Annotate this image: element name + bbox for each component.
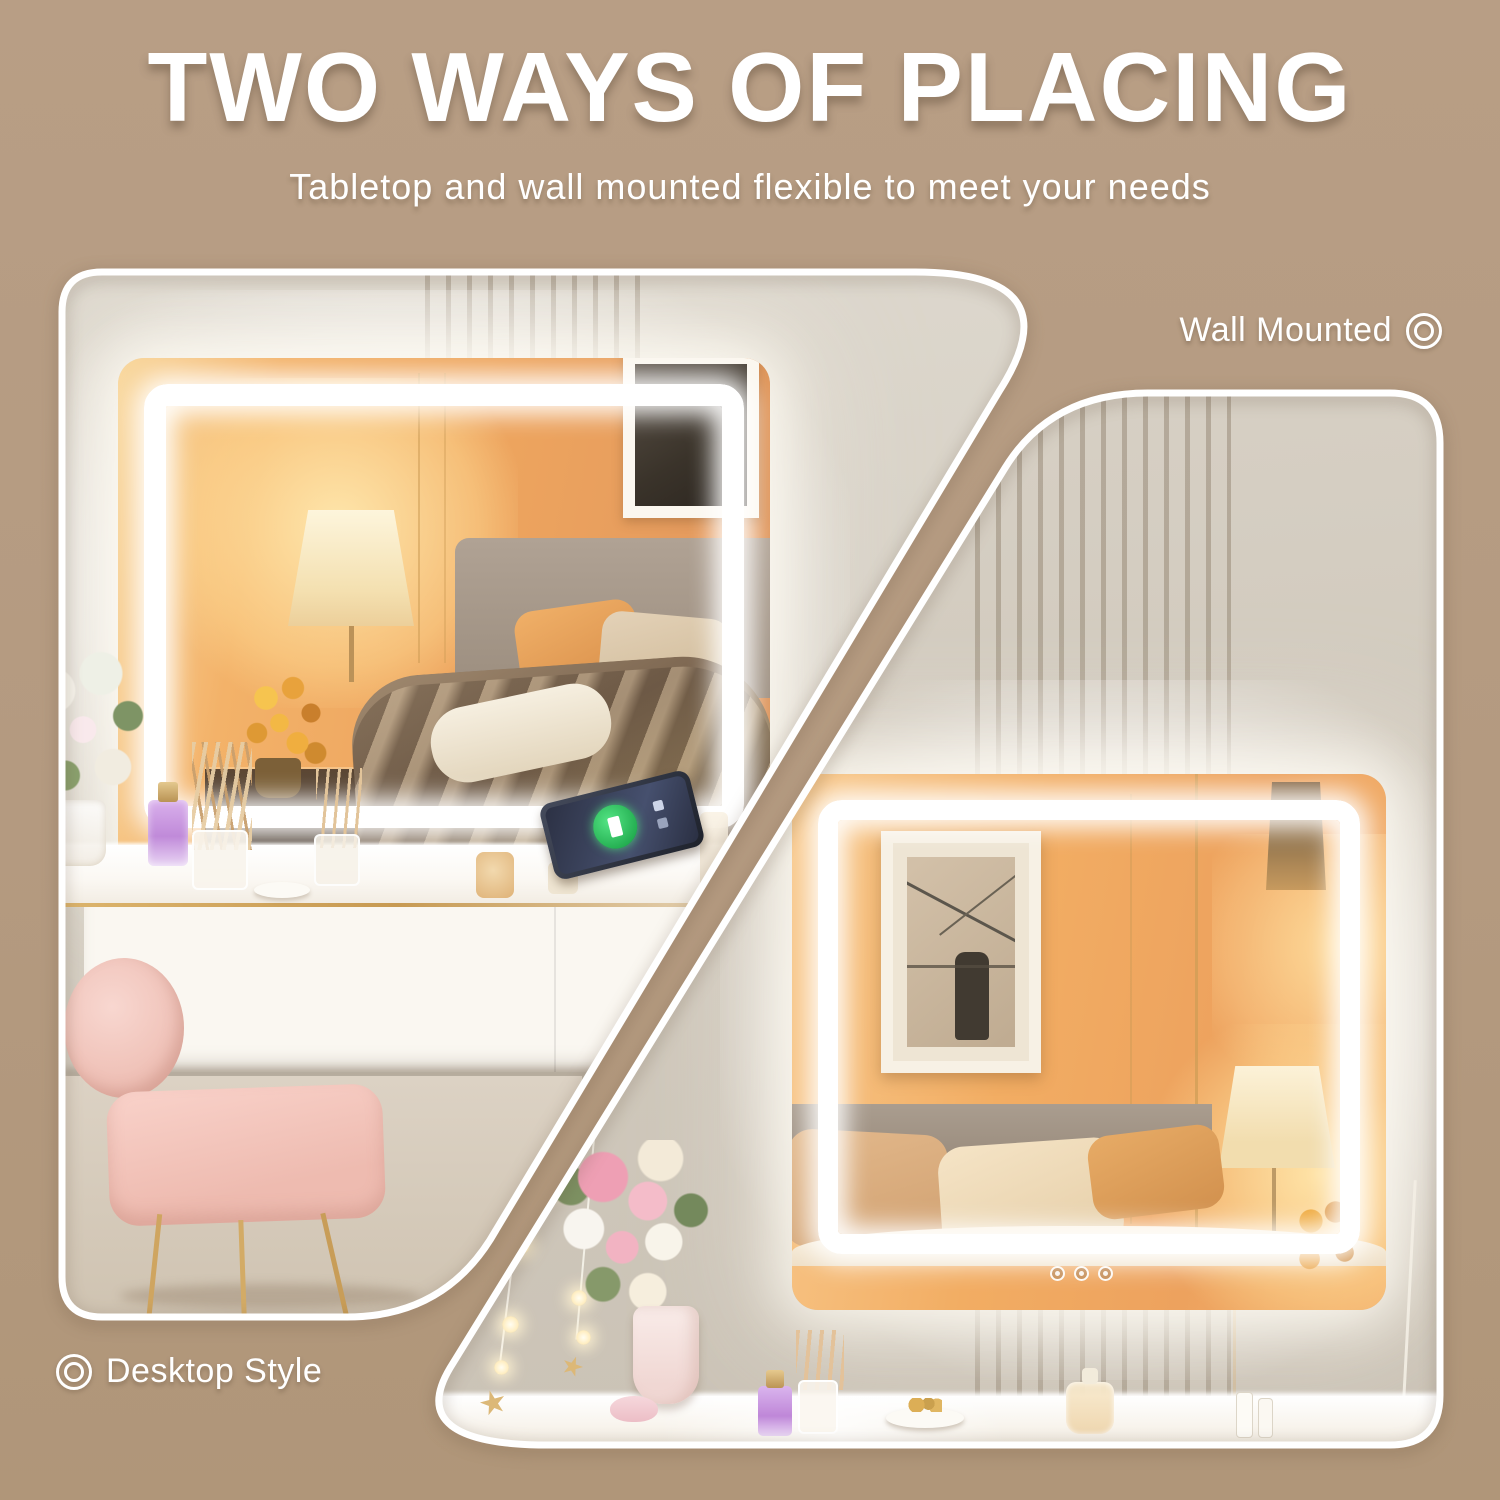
fairy-light-bulb (502, 1316, 519, 1333)
touch-control-icon (1074, 1266, 1089, 1281)
double-circle-icon (1406, 313, 1442, 349)
pink-trinket-dish (610, 1396, 658, 1422)
flower-bouquet-white (8, 648, 158, 818)
page-title: TWO WAYS OF PLACING (0, 36, 1500, 139)
fairy-light-bulb (576, 1330, 591, 1345)
fairy-light-bulb (514, 1238, 530, 1254)
desktop-style-label: Desktop Style (56, 1352, 322, 1391)
fairy-light-bulb (494, 1360, 509, 1375)
jar-lid-knob (1082, 1368, 1098, 1384)
wall-mounted-mirror (792, 774, 1386, 1310)
double-circle-icon (56, 1354, 92, 1390)
perfume-cap-gold (766, 1370, 784, 1388)
glass-candy-jar (1066, 1382, 1114, 1434)
touch-control-icon (1098, 1266, 1113, 1281)
chair-shadow (120, 1284, 420, 1308)
perfume-bottle-purple (148, 800, 188, 866)
round-tray (254, 882, 310, 898)
gold-jewelry (908, 1398, 942, 1412)
nail-polish-bottle (1236, 1392, 1253, 1438)
page-subtitle: Tabletop and wall mounted flexible to me… (0, 166, 1500, 208)
chair-backrest (64, 958, 184, 1098)
amber-jar (476, 852, 514, 898)
perfume-cap-gold (158, 782, 178, 802)
chair-seat (106, 1083, 387, 1227)
product-image-canvas: TWO WAYS OF PLACING Tabletop and wall mo… (0, 0, 1500, 1500)
brush-cup (192, 830, 248, 890)
brush-cup-clear (798, 1380, 838, 1434)
wall-mounted-label-text: Wall Mounted (1179, 311, 1392, 350)
flower-vase (633, 1306, 699, 1404)
flower-vase-glass (48, 800, 106, 866)
rose-bouquet (555, 1140, 715, 1325)
desktop-style-label-text: Desktop Style (106, 1352, 322, 1391)
touch-control-icon (1050, 1266, 1065, 1281)
small-bottle-tall (700, 812, 728, 892)
perfume-bottle-purple (758, 1386, 792, 1436)
brush-cup-small (314, 834, 360, 886)
led-strip-frame (818, 800, 1360, 1254)
nail-polish-bottle (1258, 1398, 1273, 1438)
drawer-seam (554, 907, 556, 1072)
wall-mounted-label: Wall Mounted (1179, 311, 1442, 350)
